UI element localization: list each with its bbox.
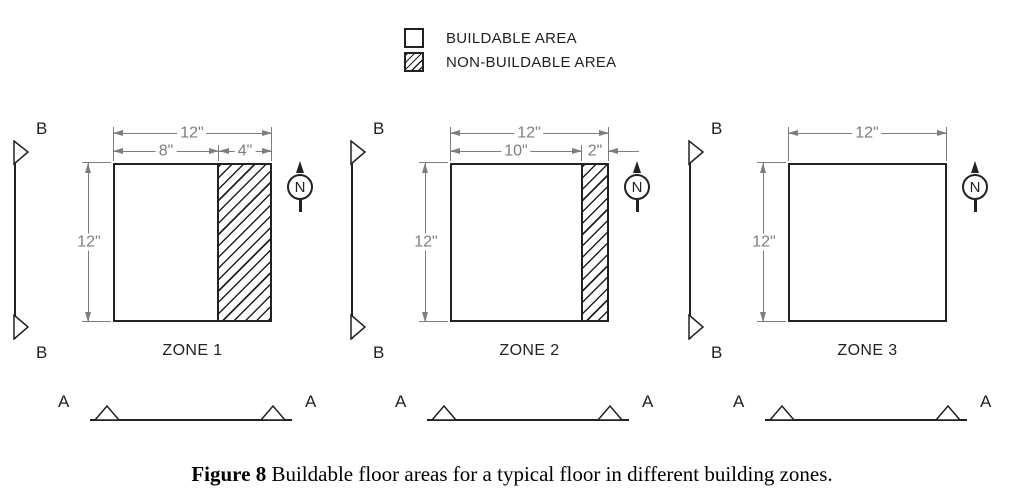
dim-arrow-icon <box>760 312 766 322</box>
section-b-arrow-top-icon <box>350 140 368 166</box>
dim-arrow-icon <box>262 148 272 154</box>
zone-2-diagram: B B 12" 10" 2" 12" ZONE 2 N <box>337 0 686 460</box>
section-label-a-left: A <box>733 392 744 412</box>
section-b-arrow-top-icon <box>688 140 706 166</box>
section-label-a-right: A <box>980 392 991 412</box>
figure-8-buildable-areas: BUILDABLE AREA NON-BUILDABLE AREA B B 12… <box>0 0 1024 501</box>
dim-arrow-icon <box>608 148 618 154</box>
dim-label-height: 12" <box>74 234 103 251</box>
section-label-a-left: A <box>58 392 69 412</box>
dim-arrow-icon <box>937 130 947 136</box>
dim-arrow-icon <box>219 148 229 154</box>
dim-label-height: 12" <box>749 234 778 251</box>
dim-label-buildable-width: 10" <box>501 143 530 160</box>
dim-arrow-icon <box>760 163 766 173</box>
zone-name: ZONE 3 <box>788 342 947 360</box>
buildable-area <box>788 163 947 322</box>
dim-arrow-icon <box>262 130 272 136</box>
dim-label-height: 12" <box>411 234 440 251</box>
dim-arrow-icon <box>599 130 609 136</box>
north-tail <box>299 200 302 212</box>
section-label-b-top: B <box>373 119 384 139</box>
dim-arrow-icon <box>113 148 123 154</box>
zone-1-diagram: B B 12" 8" 4" 12" ZONE 1 N <box>0 0 349 460</box>
dim-label-nonbuildable-width: 4" <box>235 143 256 160</box>
north-arrow-icon <box>633 161 641 173</box>
dim-arrow-icon <box>450 130 460 136</box>
north-circle: N <box>962 174 988 200</box>
section-label-b-bottom: B <box>36 343 47 363</box>
section-label-a-left: A <box>395 392 406 412</box>
dim-label-buildable-width: 8" <box>156 143 177 160</box>
dim-label-total-width: 12" <box>177 125 206 142</box>
dim-label-nonbuildable-width: 2" <box>585 143 606 160</box>
figure-number: Figure 8 <box>191 462 266 486</box>
dim-arrow-icon <box>85 163 91 173</box>
dim-arrow-icon <box>450 148 460 154</box>
buildable-area <box>450 163 609 322</box>
caption-text: Buildable floor areas for a typical floo… <box>266 462 832 486</box>
north-tail <box>636 200 639 212</box>
section-a-arrow-left-icon <box>94 405 120 421</box>
section-a-arrow-right-icon <box>935 405 961 421</box>
section-b-arrow-bottom-icon <box>350 314 368 340</box>
north-indicator: N <box>624 161 650 212</box>
section-a-arrow-left-icon <box>769 405 795 421</box>
section-label-b-top: B <box>711 119 722 139</box>
dim-label-total-width: 12" <box>514 125 543 142</box>
north-tail <box>974 200 977 212</box>
section-a-arrow-right-icon <box>597 405 623 421</box>
section-line-b <box>351 142 353 339</box>
section-b-arrow-top-icon <box>13 140 31 166</box>
section-label-b-top: B <box>36 119 47 139</box>
north-circle: N <box>287 174 313 200</box>
zone-name: ZONE 1 <box>113 342 272 360</box>
dim-arrow-icon <box>422 163 428 173</box>
north-indicator: N <box>962 161 988 212</box>
figure-caption: Figure 8 Buildable floor areas for a typ… <box>0 462 1024 487</box>
buildable-area <box>113 163 272 322</box>
section-a-arrow-right-icon <box>260 405 286 421</box>
dim-arrow-icon <box>572 148 582 154</box>
dim-label-total-width: 12" <box>852 125 881 142</box>
north-arrow-icon <box>971 161 979 173</box>
dim-arrow-icon <box>422 312 428 322</box>
north-circle: N <box>624 174 650 200</box>
dim-arrow-icon <box>209 148 219 154</box>
non-buildable-area-hatch <box>581 165 607 320</box>
section-b-arrow-bottom-icon <box>688 314 706 340</box>
north-arrow-icon <box>296 161 304 173</box>
section-label-a-right: A <box>642 392 653 412</box>
dim-arrow-icon <box>113 130 123 136</box>
section-label-b-bottom: B <box>711 343 722 363</box>
zone-3-diagram: B B 12" 12" ZONE 3 N A A <box>675 0 1024 460</box>
section-label-a-right: A <box>305 392 316 412</box>
section-a-arrow-left-icon <box>431 405 457 421</box>
north-indicator: N <box>287 161 313 212</box>
section-label-b-bottom: B <box>373 343 384 363</box>
section-line-b <box>14 142 16 339</box>
dim-arrow-icon <box>788 130 798 136</box>
section-line-b <box>689 142 691 339</box>
non-buildable-area-hatch <box>217 165 270 320</box>
zone-name: ZONE 2 <box>450 342 609 360</box>
dim-arrow-icon <box>85 312 91 322</box>
section-b-arrow-bottom-icon <box>13 314 31 340</box>
